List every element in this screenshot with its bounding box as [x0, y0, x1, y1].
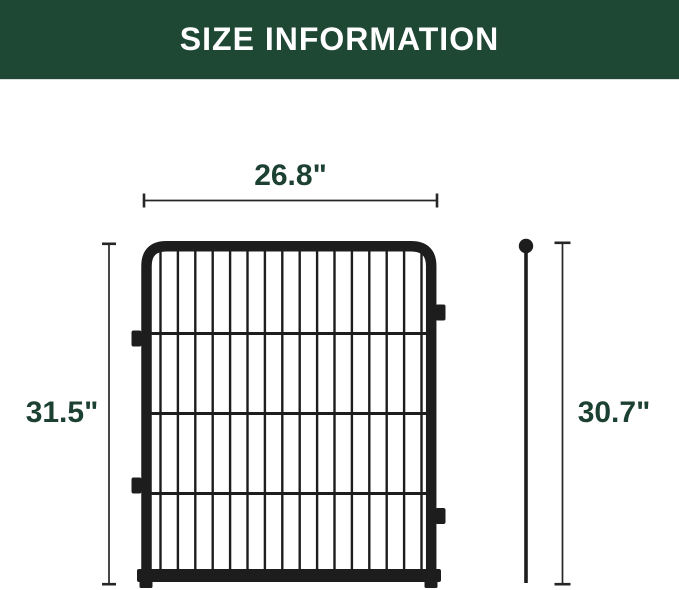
ground-stake — [519, 239, 533, 583]
fence-base-bar — [137, 569, 441, 582]
width-dimension-line — [143, 194, 438, 208]
size-information-infographic: SIZE INFORMATION 26.8" 31.5" 30.7" — [0, 0, 679, 590]
size-diagram — [0, 0, 679, 590]
connector-tab-left-bottom — [132, 478, 142, 494]
panel-height-dimension-line — [102, 243, 116, 585]
stake-rod — [524, 251, 528, 583]
fence-wire-grid — [149, 249, 429, 570]
fence-frame — [147, 246, 432, 575]
connector-tab-right-bottom — [436, 508, 446, 524]
fence-foot-right — [425, 580, 438, 588]
fence-panel — [132, 246, 446, 588]
connector-tab-left-top — [132, 331, 142, 347]
fence-foot-left — [140, 580, 153, 588]
stake-height-dimension-line — [555, 242, 571, 585]
connector-tab-right-top — [436, 305, 446, 321]
